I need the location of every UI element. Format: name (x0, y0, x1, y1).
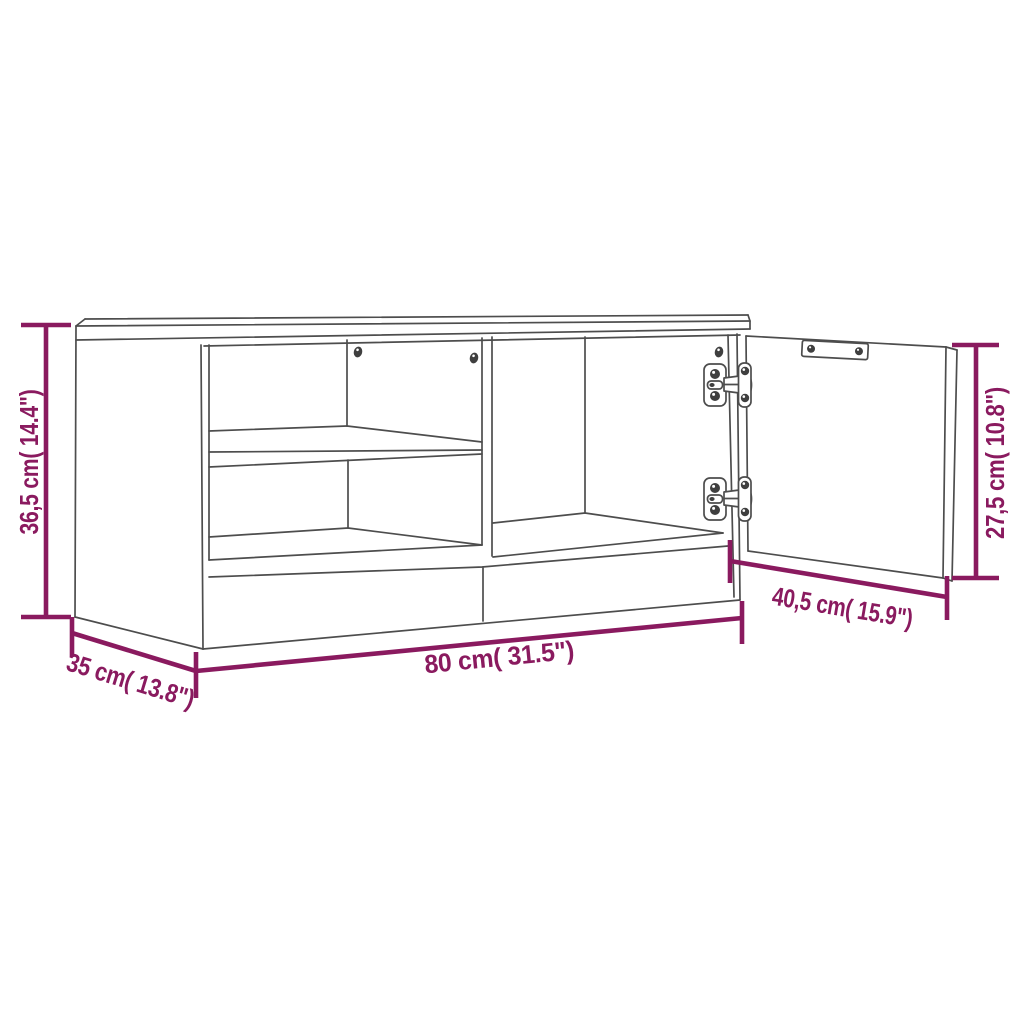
plinth-top-edge (209, 546, 728, 577)
floor-front-edge-right (493, 533, 723, 557)
left-side-panel (75, 326, 209, 649)
top-panel-left-closure (76, 319, 85, 326)
hinge-screw (741, 367, 749, 375)
shelf-back-edge (347, 426, 482, 442)
dimension-annotations: 36,5 cm( 14.4") 35 cm( 13.8") 80 cm( 31.… (14, 325, 1010, 714)
door-far-edge (952, 350, 957, 581)
dimension-width: 80 cm( 31.5") (196, 601, 742, 679)
dimension-door-width: 40,5 cm( 15.9") (730, 540, 947, 634)
hinge-screw (710, 391, 720, 401)
side-panel-outer-edge (75, 326, 76, 617)
width-label: 80 cm( 31.5") (423, 635, 575, 679)
shelf-back-left-edge (209, 426, 347, 431)
dimension-height: 36,5 cm( 14.4") (14, 325, 71, 617)
hinge-top (704, 363, 752, 407)
base-front (203, 546, 740, 649)
side-panel-inner-edge (201, 345, 203, 649)
hinge-screw (741, 394, 749, 402)
door-bottom-edge (748, 551, 943, 578)
hinge-screw (710, 483, 720, 493)
height-label: 36,5 cm( 14.4") (14, 390, 44, 535)
dimension-door-height: 27,5 cm( 10.8") (952, 345, 1010, 578)
screw-hole (353, 346, 364, 359)
door-mounting-plate (802, 340, 869, 359)
top-panel-bottom-edge (76, 329, 750, 340)
compartment-back-bottom-right (348, 528, 482, 545)
floor-front-edge-left (209, 545, 482, 560)
hinge-screw (710, 505, 720, 515)
hinge-screw (741, 481, 749, 489)
right-back-bottom-left (493, 513, 585, 523)
hinge-bottom (704, 477, 752, 521)
hinge-screw (710, 369, 720, 379)
screw-hole (469, 352, 480, 365)
side-panel-bottom-edge (75, 617, 203, 649)
cabinet-dimension-diagram: 36,5 cm( 14.4") 35 cm( 13.8") 80 cm( 31.… (0, 0, 1024, 1024)
top-panel-back-edge (85, 315, 748, 319)
shelf-front-edge (209, 450, 482, 452)
top-panel-right-closure (748, 315, 750, 329)
center-divider (482, 337, 492, 556)
hinge-screw (741, 508, 749, 516)
depth-label: 35 cm( 13.8") (63, 647, 198, 714)
shelf-front-bottom-edge (209, 454, 482, 467)
compartment-back-bottom-left (209, 528, 348, 537)
top-panel-front-edge (76, 321, 750, 326)
right-back-bottom-right (585, 513, 723, 533)
screw-holes (353, 346, 725, 365)
left-compartment (209, 340, 482, 560)
door-right-edge (943, 347, 946, 578)
right-compartment (493, 337, 723, 557)
diagram-page: 36,5 cm( 14.4") 35 cm( 13.8") 80 cm( 31.… (0, 0, 1024, 1024)
door-height-label: 27,5 cm( 10.8") (980, 387, 1010, 539)
open-door (746, 336, 957, 581)
door-top-closure (946, 347, 957, 350)
screw-hole (714, 346, 725, 359)
